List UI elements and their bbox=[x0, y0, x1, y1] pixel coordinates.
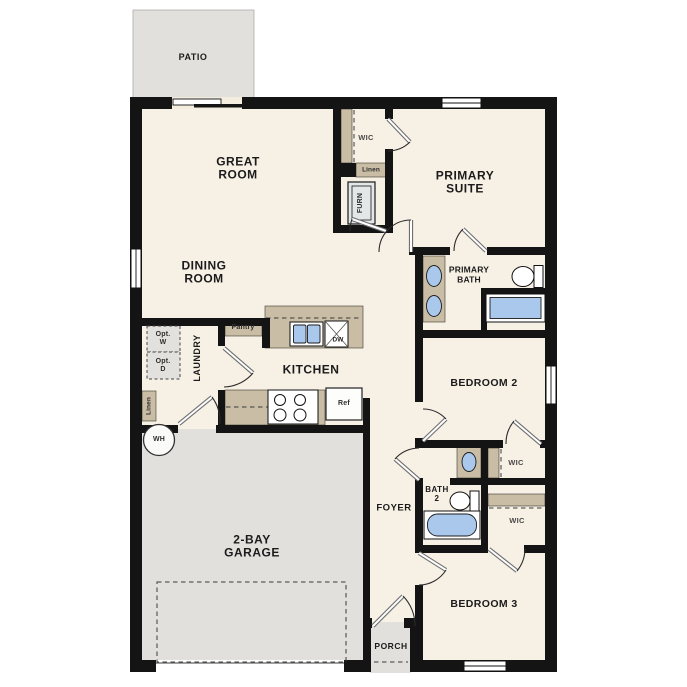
window-bedroom-3 bbox=[464, 661, 506, 671]
primary-suite-label: PRIMARYSUITE bbox=[436, 170, 494, 197]
wall bbox=[218, 390, 225, 425]
window-primary-suite bbox=[442, 98, 481, 108]
wic-b-shelf bbox=[488, 494, 545, 506]
window-dining bbox=[131, 249, 141, 288]
wall bbox=[415, 545, 488, 553]
bath2-toilet bbox=[450, 491, 479, 511]
porch-label: PORCH bbox=[374, 642, 407, 652]
garage-label: 2-BAYGARAGE bbox=[224, 534, 280, 561]
wall bbox=[363, 620, 371, 672]
stove bbox=[268, 390, 318, 424]
opt-washer-label: Opt.W bbox=[156, 331, 171, 347]
bedroom-3-label: BEDROOM 3 bbox=[450, 599, 517, 611]
bath2-tub bbox=[424, 511, 480, 539]
wall bbox=[524, 545, 557, 553]
wall bbox=[423, 247, 450, 255]
wic-a-label: WIC bbox=[508, 459, 523, 467]
window-bedroom-2 bbox=[546, 366, 556, 404]
wall bbox=[262, 318, 270, 348]
wall-outer-left bbox=[130, 97, 142, 672]
bedroom-2-label: BEDROOM 2 bbox=[450, 378, 517, 390]
wic-a-shelf bbox=[488, 448, 499, 478]
refrigerator-label: Ref bbox=[338, 400, 350, 408]
patio-slider-panel2 bbox=[194, 104, 242, 108]
wall bbox=[481, 447, 488, 545]
furnace-label: FURN bbox=[357, 193, 365, 213]
opt-dryer-label: Opt.D bbox=[156, 358, 171, 374]
floorplan: PATIO GREATROOM DININGROOM WIC Linen FUR… bbox=[0, 0, 687, 687]
wic-primary-shelf bbox=[341, 109, 352, 163]
patio-label: PATIO bbox=[179, 52, 208, 62]
primary-bath-label: PRIMARYBATH bbox=[449, 265, 489, 284]
wall bbox=[218, 318, 225, 346]
dishwasher-label: DW bbox=[332, 336, 343, 343]
wall bbox=[415, 440, 503, 448]
kitchen-label: KITCHEN bbox=[283, 363, 340, 376]
foyer-label: FOYER bbox=[376, 504, 411, 515]
wall bbox=[385, 149, 393, 232]
wall bbox=[363, 398, 370, 620]
wic-primary-label: WIC bbox=[358, 134, 373, 142]
primary-toilet bbox=[512, 266, 543, 288]
laundry-label: LAUNDRY bbox=[192, 334, 202, 381]
wall bbox=[450, 478, 557, 485]
wall bbox=[385, 109, 393, 119]
wic-b-label: WIC bbox=[509, 517, 524, 525]
wall bbox=[410, 620, 420, 672]
kitchen-sink bbox=[290, 322, 323, 346]
bath2-vanity-sink bbox=[462, 453, 476, 472]
pantry-label: Pantry bbox=[232, 324, 255, 332]
primary-tub bbox=[486, 294, 545, 322]
water-heater-label: WH bbox=[153, 436, 165, 444]
great-room-label: GREATROOM bbox=[216, 156, 260, 183]
wall bbox=[341, 163, 356, 177]
wall bbox=[487, 247, 557, 255]
bath-2-label: BATH2 bbox=[425, 486, 449, 504]
wall bbox=[415, 247, 423, 338]
wall bbox=[415, 338, 423, 402]
wall bbox=[481, 288, 545, 294]
linen-primary-label: Linen bbox=[362, 166, 380, 173]
wall bbox=[216, 425, 363, 433]
linen-hall-label: Linen bbox=[145, 397, 152, 415]
wall bbox=[415, 478, 423, 545]
wall bbox=[415, 330, 557, 338]
dining-room-label: DININGROOM bbox=[182, 260, 227, 287]
wall bbox=[333, 109, 341, 232]
wall bbox=[540, 440, 557, 448]
